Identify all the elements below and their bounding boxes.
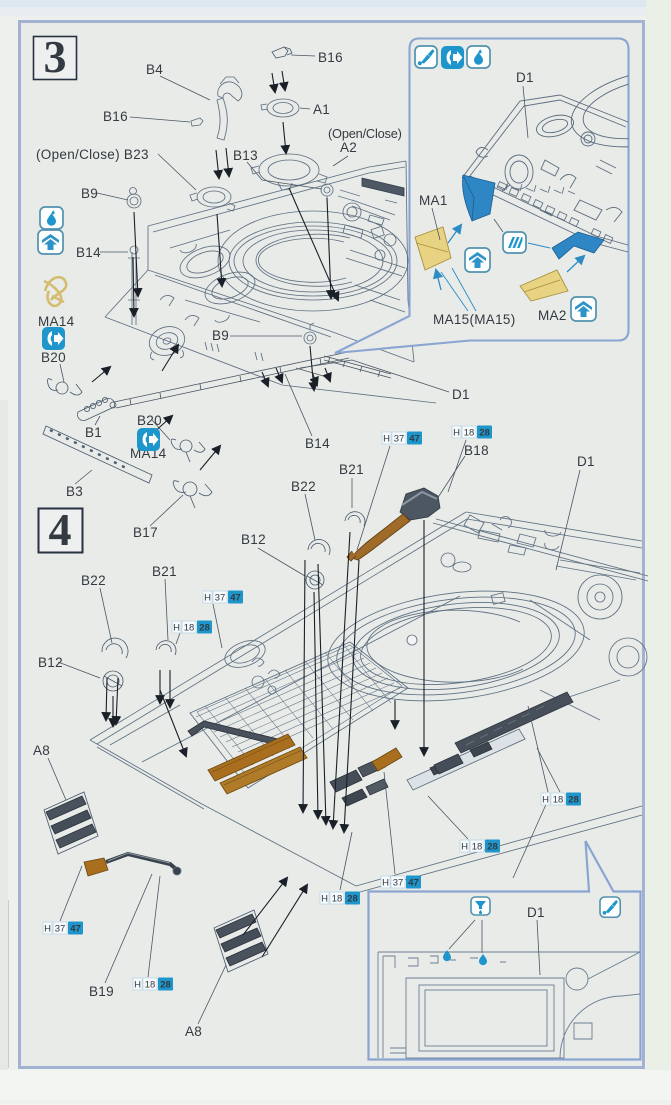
svg-text:B1: B1 xyxy=(85,425,102,440)
svg-text:D1: D1 xyxy=(577,454,595,469)
svg-text:B20: B20 xyxy=(41,350,66,365)
svg-text:B12: B12 xyxy=(241,532,266,547)
svg-text:MA1: MA1 xyxy=(419,193,448,208)
svg-text:B9: B9 xyxy=(81,186,98,201)
svg-text:(Open/Close): (Open/Close) xyxy=(328,126,402,141)
svg-text:A8: A8 xyxy=(185,1024,202,1039)
svg-text:B17: B17 xyxy=(133,525,158,540)
svg-text:MA15(MA15): MA15(MA15) xyxy=(433,312,516,327)
svg-text:A1: A1 xyxy=(313,102,330,117)
svg-text:D1: D1 xyxy=(452,387,470,402)
svg-text:B21: B21 xyxy=(152,564,177,579)
svg-text:B4: B4 xyxy=(146,62,163,77)
svg-text:MA14: MA14 xyxy=(38,314,75,329)
svg-text:4: 4 xyxy=(49,504,72,555)
svg-text:B18: B18 xyxy=(464,443,489,458)
svg-text:MA2: MA2 xyxy=(538,308,567,323)
svg-text:B3: B3 xyxy=(66,484,83,499)
svg-text:B12: B12 xyxy=(38,655,63,670)
svg-text:3: 3 xyxy=(44,31,67,82)
svg-text:B22: B22 xyxy=(81,573,106,588)
svg-text:B14: B14 xyxy=(305,436,330,451)
svg-text:A2: A2 xyxy=(340,140,357,155)
svg-text:A8: A8 xyxy=(33,743,50,758)
svg-text:B13: B13 xyxy=(233,148,258,163)
svg-text:B16: B16 xyxy=(103,109,128,124)
svg-text:B19: B19 xyxy=(89,984,114,999)
svg-text:(Open/Close) B23: (Open/Close) B23 xyxy=(36,147,149,162)
svg-text:D1: D1 xyxy=(516,70,534,85)
svg-text:D1: D1 xyxy=(527,905,545,920)
svg-text:B21: B21 xyxy=(339,462,364,477)
svg-text:B14: B14 xyxy=(76,245,101,260)
svg-text:B16: B16 xyxy=(318,50,343,65)
svg-text:B20: B20 xyxy=(137,413,162,428)
svg-text:B9: B9 xyxy=(212,328,229,343)
svg-text:B22: B22 xyxy=(291,479,316,494)
